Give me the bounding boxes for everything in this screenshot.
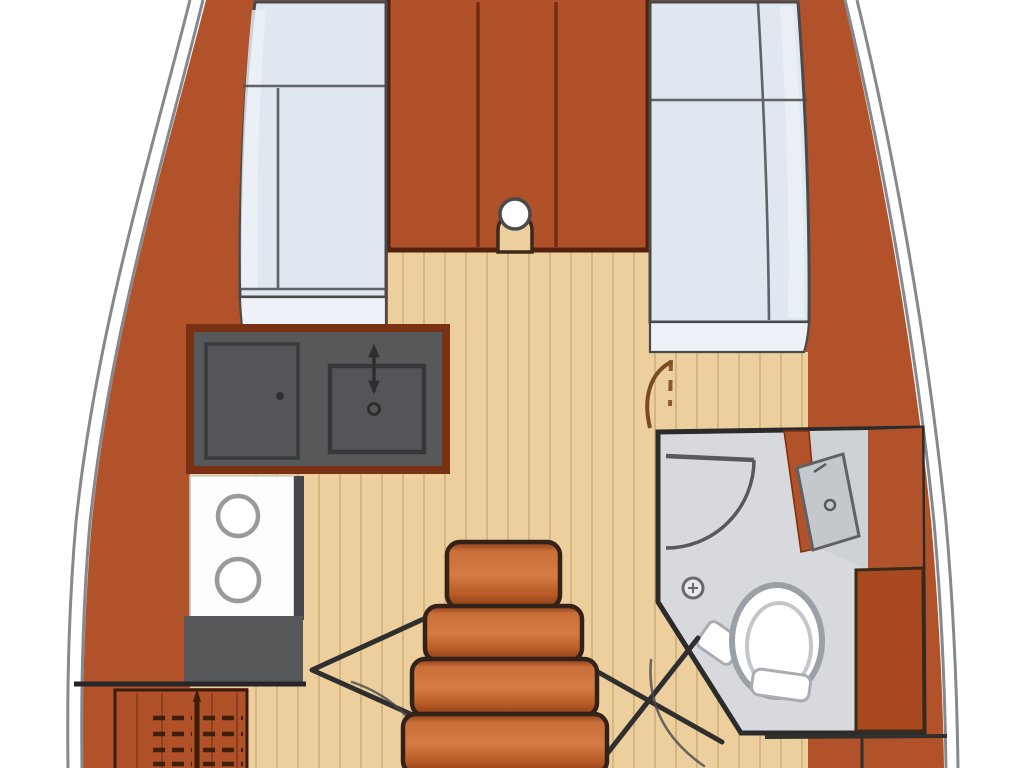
oven-top	[206, 344, 298, 458]
port-settee-front	[240, 297, 386, 327]
yacht-floorplan	[0, 0, 1024, 768]
port-settee	[240, 2, 386, 327]
port-aft-cabinet	[115, 688, 247, 768]
starboard-settee	[650, 2, 809, 352]
forward-cabinet	[388, 0, 648, 252]
drain-icon	[683, 578, 703, 598]
head-cabinet	[856, 568, 924, 731]
stove-side-trim	[294, 476, 304, 620]
step-2	[425, 606, 582, 661]
aft-galley-counter	[184, 616, 303, 686]
step-3	[412, 659, 597, 716]
galley-sink	[330, 366, 424, 452]
step-4	[403, 714, 607, 768]
port-aft-cabinet-panel	[115, 690, 247, 768]
floorplan-canvas	[0, 0, 1024, 768]
oven-knob-icon	[276, 392, 284, 400]
starboard-settee-front	[650, 322, 809, 352]
step-1	[447, 542, 560, 608]
burner-icon	[217, 559, 259, 601]
burner-icon	[218, 496, 258, 536]
door-knob-icon	[500, 199, 530, 229]
head-hull-shelf	[868, 428, 923, 570]
